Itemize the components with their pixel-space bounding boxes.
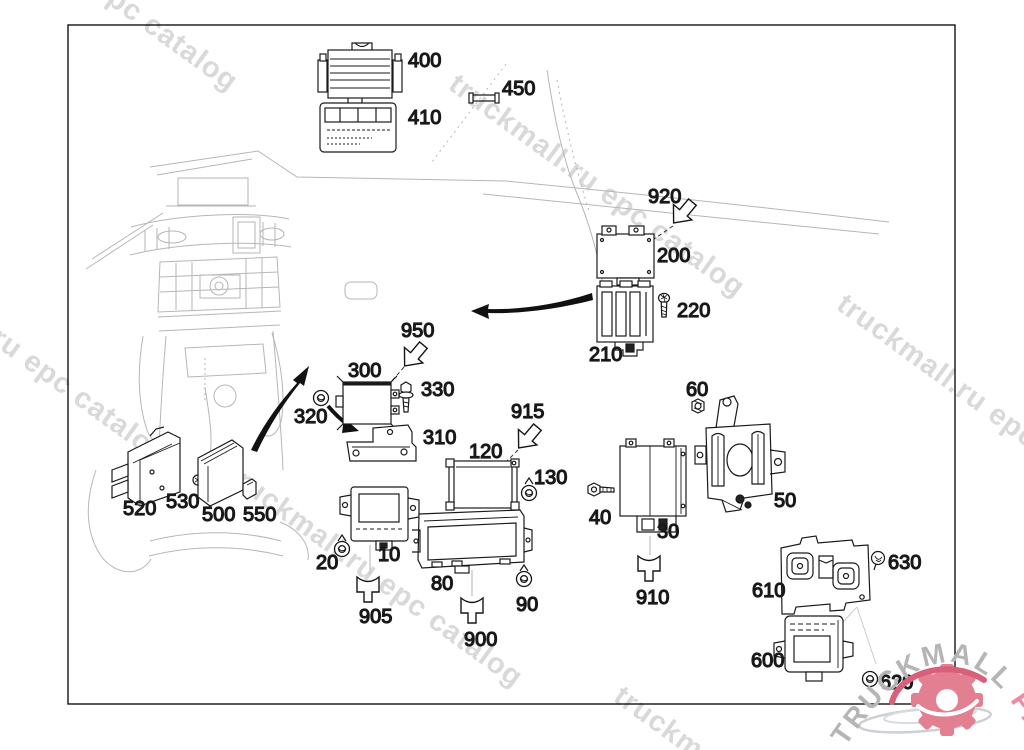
part-630-hotspot[interactable]: 630 (872, 552, 922, 575)
part-600-label: 600 (751, 650, 784, 672)
part-10-drawing (340, 487, 419, 550)
part-120-label: 120 (469, 441, 502, 463)
part-200-label: 200 (657, 245, 690, 267)
part-950-label: 950 (401, 320, 434, 342)
part-330-drawing (399, 382, 413, 412)
part-90-hotspot[interactable]: 90 (516, 565, 538, 616)
part-40-drawing (588, 483, 614, 496)
part-410-hotspot[interactable]: 410 (320, 103, 441, 152)
part-310-hotspot[interactable]: 310 (347, 425, 456, 461)
part-90-label: 90 (516, 594, 538, 616)
watermark-text: truckmall.ru epc catalog (831, 288, 1024, 524)
part-550-label: 550 (243, 504, 276, 526)
watermark-layer: truckmall.ru epc catalog truckmall.ru ep… (0, 0, 1024, 750)
part-60-hotspot[interactable]: 60 (686, 379, 708, 413)
part-300-label: 300 (348, 360, 381, 382)
part-950-drawing (395, 337, 431, 374)
part-910-hotspot[interactable]: 910 (636, 556, 669, 609)
part-10-label: 10 (378, 544, 400, 566)
part-30-drawing (620, 439, 686, 532)
flow-arrow-left (471, 293, 593, 319)
part-60-drawing (692, 399, 704, 413)
part-900-drawing (461, 598, 483, 623)
part-30-hotspot[interactable]: 30 (620, 439, 686, 543)
part-500-label: 500 (202, 504, 235, 526)
part-610-label: 610 (752, 580, 785, 602)
part-410-label: 410 (408, 107, 441, 129)
part-915-hotspot[interactable]: 915 (509, 401, 545, 456)
part-630-label: 630 (888, 552, 921, 574)
part-40-label: 40 (589, 507, 611, 529)
part-610-hotspot[interactable]: 610 (752, 536, 870, 614)
part-600-hotspot[interactable]: 600 (751, 616, 853, 681)
part-130-hotspot[interactable]: 130 (522, 467, 568, 501)
part-50-hotspot[interactable]: 50 (695, 396, 796, 512)
part-400-label: 400 (408, 50, 441, 72)
part-450-label: 450 (502, 78, 535, 100)
part-905-label: 905 (359, 606, 392, 628)
part-530-label: 530 (166, 491, 199, 513)
part-320-drawing (314, 391, 329, 406)
part-210-hotspot[interactable]: 210 (589, 281, 653, 366)
part-500-drawing (198, 440, 243, 506)
part-120-hotspot[interactable]: 120 (446, 441, 519, 510)
part-520-label: 520 (123, 498, 156, 520)
part-50-drawing (695, 396, 785, 512)
part-20-label: 20 (316, 552, 338, 574)
part-90-drawing (517, 565, 532, 587)
part-120-drawing (446, 459, 519, 510)
part-610-drawing (781, 536, 870, 614)
part-910-label: 910 (636, 587, 669, 609)
part-915-label: 915 (511, 401, 544, 423)
part-80-drawing (412, 510, 532, 573)
part-920-label: 920 (648, 186, 681, 208)
part-600-drawing (774, 616, 853, 681)
watermark-text: truckmall.ru epc catalog (0, 235, 174, 471)
part-300-hotspot[interactable]: 300 (336, 360, 399, 430)
part-300-drawing (336, 376, 399, 430)
part-60-label: 60 (686, 379, 708, 401)
part-40-hotspot[interactable]: 40 (588, 483, 614, 529)
parts-catalog-page: truckmall.ru epc catalog truckmall.ru ep… (0, 0, 1024, 750)
part-210-label: 210 (589, 344, 622, 366)
parts-diagram-canvas: truckmall.ru epc catalog truckmall.ru ep… (0, 0, 1024, 750)
part-220-hotspot[interactable]: 220 (659, 293, 711, 322)
part-310-label: 310 (423, 427, 456, 449)
leader-610-620 (843, 607, 876, 664)
part-50-label: 50 (774, 490, 796, 512)
part-220-label: 220 (677, 300, 710, 322)
part-910-drawing (638, 556, 660, 581)
part-30-label: 30 (657, 521, 679, 543)
part-130-label: 130 (534, 467, 567, 489)
part-950-hotspot[interactable]: 950 (395, 320, 434, 374)
part-630-drawing (872, 552, 885, 571)
part-330-hotspot[interactable]: 330 (399, 379, 454, 412)
part-200-drawing (597, 226, 654, 285)
part-900-label: 900 (464, 629, 497, 651)
part-330-label: 330 (421, 379, 454, 401)
part-80-label: 80 (431, 573, 453, 595)
part-220-drawing (659, 293, 670, 317)
part-500-hotspot[interactable]: 500 (198, 440, 243, 526)
part-400-drawing (318, 43, 402, 112)
part-410-drawing (320, 103, 396, 152)
part-320-hotspot[interactable]: 320 (294, 391, 329, 429)
watermark-text: truckmall.ru epc catalog (0, 0, 244, 98)
part-915-drawing (509, 419, 545, 456)
part-400-hotspot[interactable]: 400 (318, 43, 441, 112)
part-320-label: 320 (294, 406, 327, 428)
